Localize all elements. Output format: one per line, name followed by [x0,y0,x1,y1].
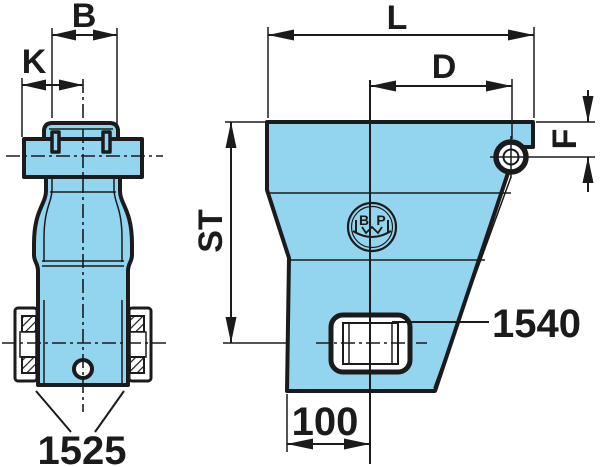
bearing-right [129,308,151,381]
side-bushing [316,315,427,372]
dim-label-L: L [387,0,408,37]
dim-label-100: 100 [292,400,359,444]
dim-label-F: F [546,129,584,150]
dimension-B: B [52,0,117,137]
front-flange-slot-right [103,132,110,152]
front-view: B K 1525 [2,0,170,467]
dimension-L: L [268,0,534,118]
dim-label-ST: ST [192,209,230,253]
dimension-100: 100 [287,394,370,452]
dim-label-B: B [72,0,97,35]
bpw-logo-letter-p: P [376,212,385,228]
side-view: B P L D [192,0,595,464]
dim-label-D: D [432,48,457,86]
bush-hatch-right-bottom [130,357,144,373]
part-label-1540: 1540 [492,302,581,346]
dim-label-K: K [22,43,47,81]
drawing-canvas: B K 1525 [0,0,600,467]
part-label-1525: 1525 [38,429,127,467]
technical-drawing-page: B K 1525 [0,0,600,467]
bearing-left [15,308,37,381]
callout-1525: 1525 [36,391,126,467]
bush-hatch-right-top [130,316,144,332]
bush-hatch-left-top [22,316,36,332]
front-flange-slot-left [52,132,59,152]
dimension-F: F [536,90,595,192]
bush-hatch-left-bottom [22,357,36,373]
bpw-logo-letter-b: B [359,212,369,228]
